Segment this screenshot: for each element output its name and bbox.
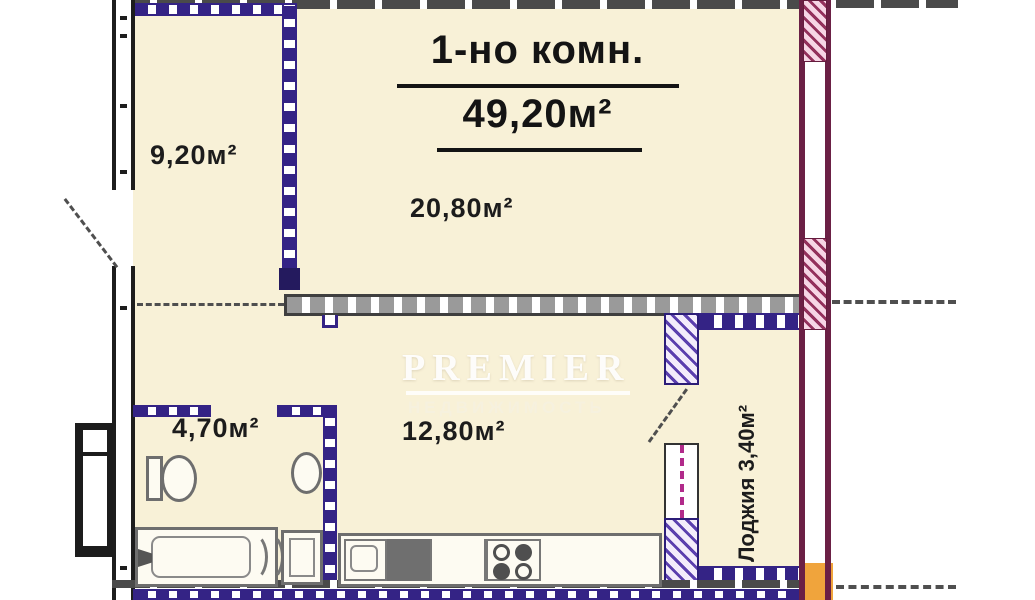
plan-total-area: 49,20м²: [390, 92, 685, 137]
entrance-door-swing: [64, 198, 119, 268]
wall-divider-cap: [279, 268, 300, 290]
label-living-area: 20,80м²: [410, 193, 514, 224]
wall-loggia-north: [699, 313, 802, 330]
label-hall-area: 9,20м²: [150, 140, 238, 171]
wall-hall-living-divider: [282, 3, 297, 273]
door-stub: [322, 315, 338, 328]
external-shaft: [75, 423, 113, 557]
watermark-subtitle: НЕДВИЖИМОСТЬ: [408, 398, 606, 418]
floor-plan: PREMIER НЕДВИЖИМОСТЬ 1-но комн. 49,20м² …: [0, 0, 1035, 600]
toilet-bowl: [161, 455, 197, 502]
label-bathroom-area: 4,70м²: [172, 413, 260, 444]
wall-right-hatch-mid: [803, 238, 827, 330]
counter-dark-cell: [387, 539, 430, 581]
wall-top-hall: [133, 3, 290, 16]
site-line-bottom-right: [836, 585, 956, 589]
label-kitchen-area: 12,80м²: [402, 416, 506, 447]
kitchen-counter: [338, 533, 662, 587]
wall-left-lower: [112, 266, 135, 600]
title-rule-1: [397, 84, 679, 88]
pier-south: [664, 518, 699, 588]
counter-cell: [430, 539, 486, 581]
label-loggia-area: Лоджия 3,40м²: [734, 405, 760, 562]
watermark-brand: PREMIER: [402, 346, 630, 390]
bathroom-sink: [291, 452, 322, 494]
bathtub: [135, 527, 278, 587]
washing-machine: [281, 530, 323, 585]
pier-north: [664, 313, 699, 385]
wall-bottom-purple: [133, 589, 800, 600]
wall-right-hatch-top: [803, 0, 827, 62]
site-line-mid-right: [832, 300, 956, 304]
title-rule-2: [437, 148, 642, 152]
watermark-rule: [406, 391, 630, 395]
balcony-window: [664, 443, 699, 520]
site-line-top-right: [836, 0, 958, 8]
stove: [486, 539, 541, 581]
window-left-wall: [112, 0, 135, 190]
kitchen-sink: [344, 539, 387, 581]
wall-bathroom-east: [323, 405, 337, 588]
plan-title: 1-но комн.: [390, 28, 685, 73]
opening-hall-passage: [137, 303, 284, 306]
bathtub-tap: [138, 549, 152, 567]
